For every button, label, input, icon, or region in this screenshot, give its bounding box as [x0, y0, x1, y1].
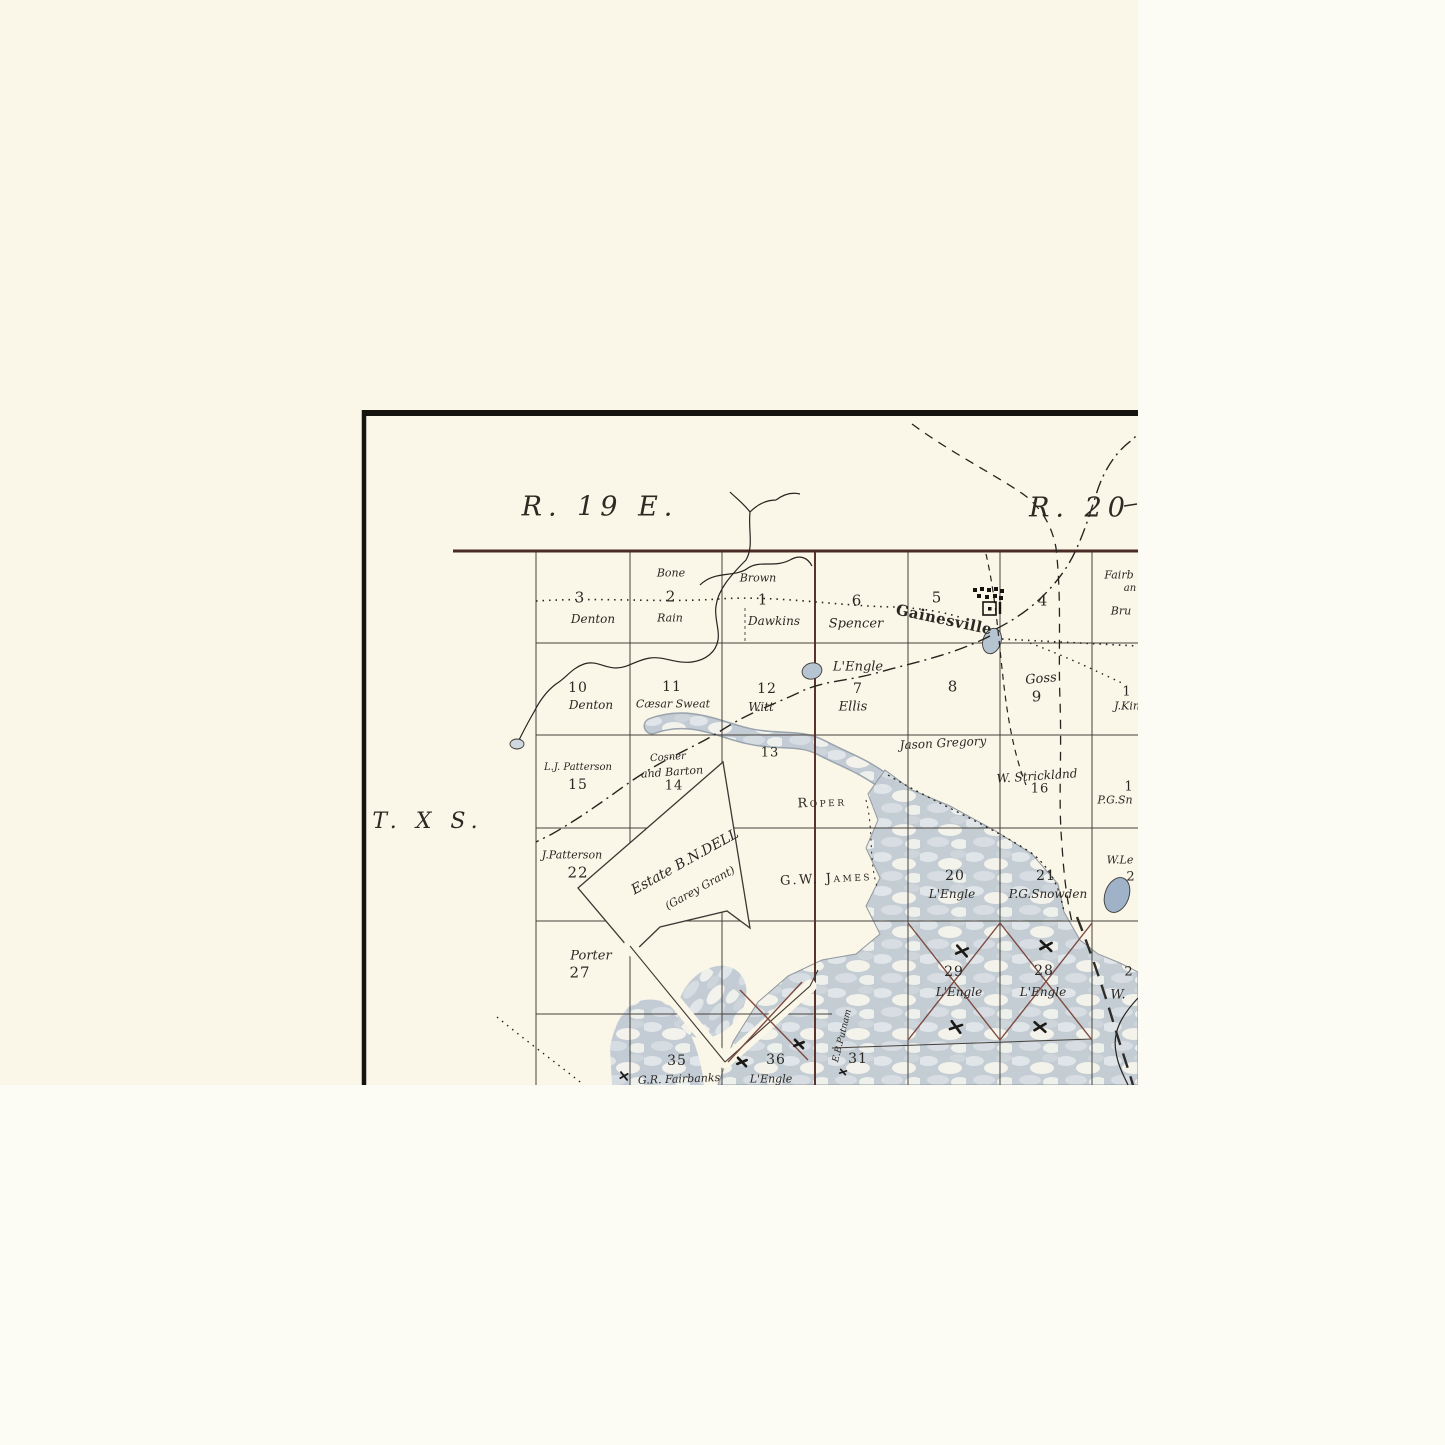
map-label: J.Patterson [542, 850, 602, 861]
range-20-label: R. 20 [1029, 495, 1131, 522]
map-label: L'Engle [936, 986, 982, 998]
map-label: 21 [1036, 869, 1056, 883]
map-label: P.G.Snowden [1009, 888, 1087, 900]
map-label: 3 [575, 591, 586, 606]
map-label: 22 [567, 866, 588, 881]
map-label: 15 [568, 778, 588, 792]
map-label: Cosner [650, 752, 687, 764]
map-label: L'Engle [750, 1074, 793, 1085]
map-label: J.Kin [1114, 701, 1140, 712]
map-label: 20 [945, 869, 965, 883]
map-label: 2 [1124, 966, 1133, 979]
map-label: Jason Gregory [899, 735, 986, 752]
town-label-gainesville: Gainesville [895, 602, 994, 637]
map-label: 8 [948, 680, 959, 695]
map-label: Fairb [1104, 570, 1133, 581]
map-label: Rain [657, 613, 683, 624]
map-label: 2 [1126, 871, 1135, 884]
map-label: Porter [570, 950, 611, 963]
map-label: L.J. Patterson [544, 763, 612, 773]
map-label: Bone [657, 568, 685, 579]
map-label: 36 [766, 1053, 786, 1067]
map-label: 1 [1122, 686, 1131, 699]
map-label: Denton [571, 613, 615, 625]
map-label: L'Engle [833, 661, 883, 674]
range-19-east-label: R. 19 E. [522, 494, 679, 521]
map-label: an [1124, 584, 1136, 594]
scan-edge-bottom [0, 1085, 1138, 1445]
map-label: Ellis [839, 701, 868, 714]
map-label: 1 [758, 593, 769, 608]
map-label: Brown [740, 573, 776, 584]
map-label: 10 [568, 681, 588, 695]
map-label: W.Le [1107, 855, 1134, 866]
map-label: Goss [1025, 671, 1058, 687]
map-label: 31 [848, 1052, 868, 1066]
map-label: 27 [569, 966, 590, 981]
estate-dell-label: Estate B.N.DELL [629, 827, 741, 898]
map-label: 9 [1032, 690, 1043, 705]
map-label: Witt [748, 701, 774, 713]
map-label: 1 [1124, 781, 1133, 794]
map-label: 7 [853, 682, 863, 696]
map-label: 14 [665, 780, 684, 793]
map-label: 6 [852, 594, 863, 609]
scan-edge-right [1138, 0, 1445, 1445]
map-label: 4 [1038, 594, 1049, 609]
map-label: Roper [797, 796, 847, 811]
map-label: 11 [662, 680, 682, 694]
map-label: 35 [667, 1054, 687, 1068]
map-label: L'Engle [1020, 986, 1066, 998]
map-label: Denton [569, 699, 613, 711]
map-label: Cæsar Sweat [636, 699, 710, 710]
map-label: 2 [666, 590, 677, 605]
map-label: Spencer [829, 618, 883, 631]
map-label: 13 [761, 747, 780, 760]
map-label: G.W. James [780, 870, 873, 888]
map-label: 16 [1031, 783, 1050, 796]
map-label: L'Engle [929, 888, 975, 900]
map-label: and Barton [641, 764, 704, 779]
township-10-south-label: T. X S. [372, 811, 483, 833]
map-label: 12 [757, 682, 777, 696]
map-label: P.G.Sn [1097, 795, 1132, 806]
map-canvas: R. 19 E.R. 20T. X S.3DentonBone2RainBrow… [0, 0, 1445, 1445]
map-label: 29 [944, 965, 964, 979]
map-label: G.R. Fairbanks [638, 1072, 721, 1086]
map-label: W. [1110, 989, 1125, 1002]
map-label: Bru [1111, 606, 1131, 617]
map-label: Dawkins [748, 615, 800, 627]
map-label: 28 [1034, 964, 1054, 978]
map-label: 5 [932, 591, 943, 606]
